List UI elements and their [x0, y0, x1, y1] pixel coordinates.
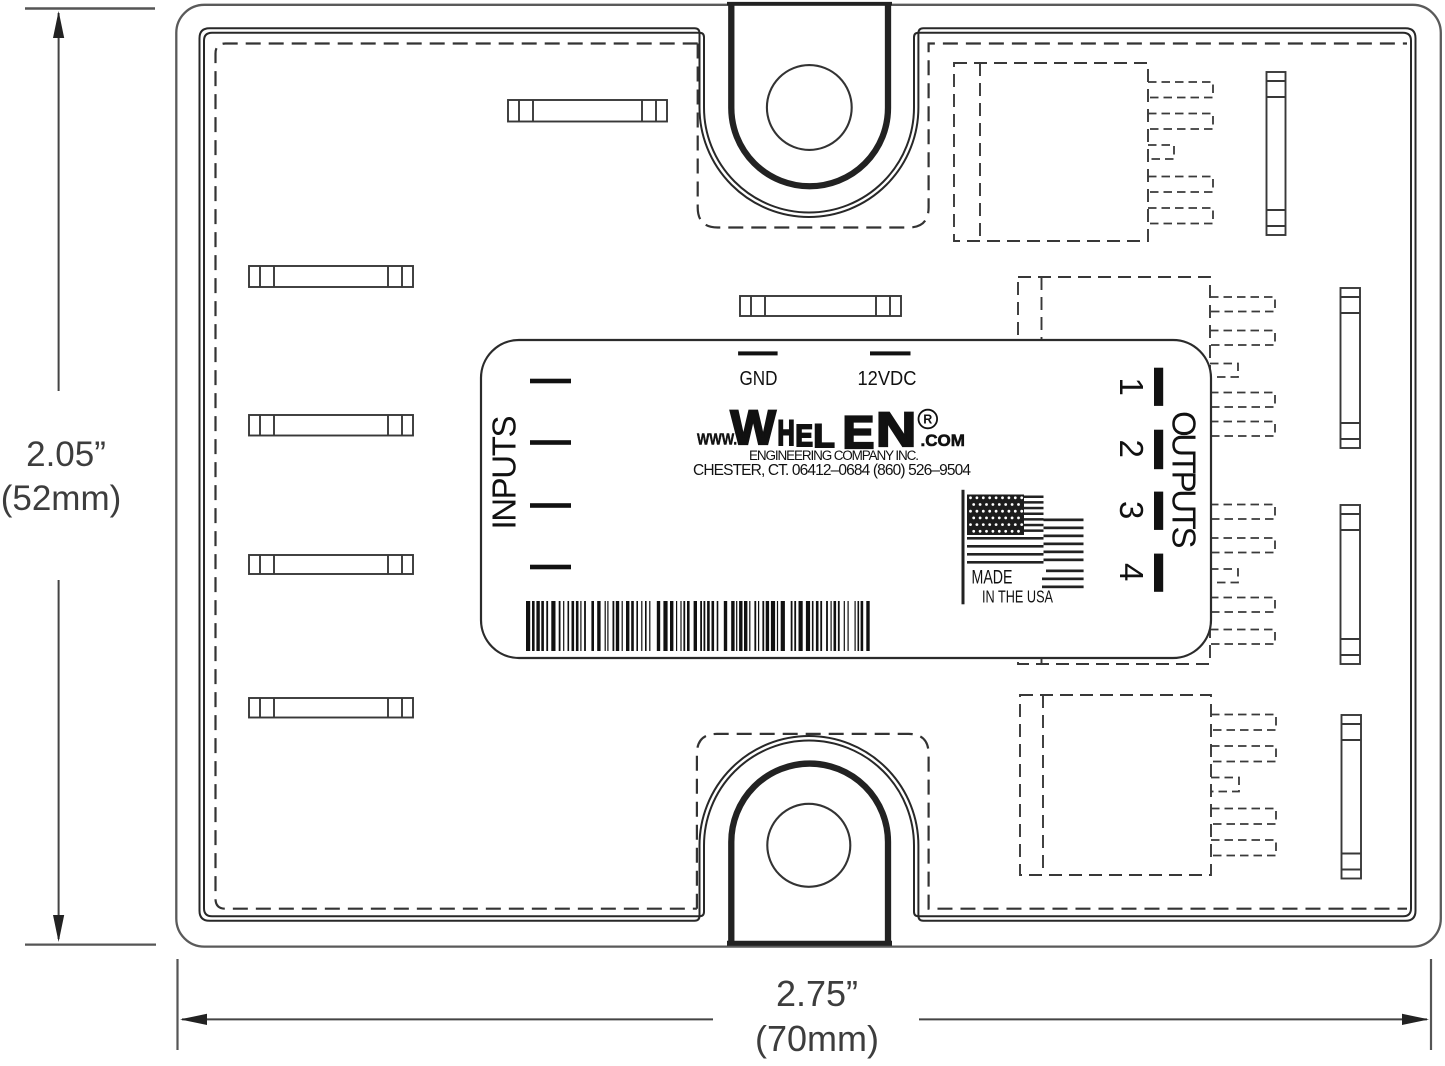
svg-text:4: 4 — [1113, 563, 1150, 581]
svg-text:IN THE USA: IN THE USA — [982, 587, 1053, 607]
svg-text:12VDC: 12VDC — [858, 368, 917, 390]
svg-text:.COM: .COM — [921, 431, 965, 450]
svg-text:R: R — [923, 413, 932, 427]
svg-text:3: 3 — [1113, 501, 1150, 519]
svg-text:(52mm): (52mm) — [1, 479, 122, 518]
svg-text:ENGINEERING COMPANY INC.: ENGINEERING COMPANY INC. — [749, 448, 919, 463]
svg-text:INPUTS: INPUTS — [486, 416, 523, 530]
svg-text:GND: GND — [740, 368, 778, 390]
svg-text:MADE: MADE — [972, 568, 1013, 589]
svg-text:(70mm): (70mm) — [755, 1018, 879, 1059]
svg-text:1: 1 — [1113, 378, 1150, 396]
svg-text:2: 2 — [1113, 440, 1150, 458]
svg-text:2.05”: 2.05” — [26, 435, 106, 474]
svg-text:2.75”: 2.75” — [776, 973, 858, 1014]
svg-text:CHESTER, CT. 06412–0684 (860): CHESTER, CT. 06412–0684 (860) 526–9504 — [693, 462, 971, 479]
svg-text:OUTPUTS: OUTPUTS — [1166, 411, 1203, 549]
